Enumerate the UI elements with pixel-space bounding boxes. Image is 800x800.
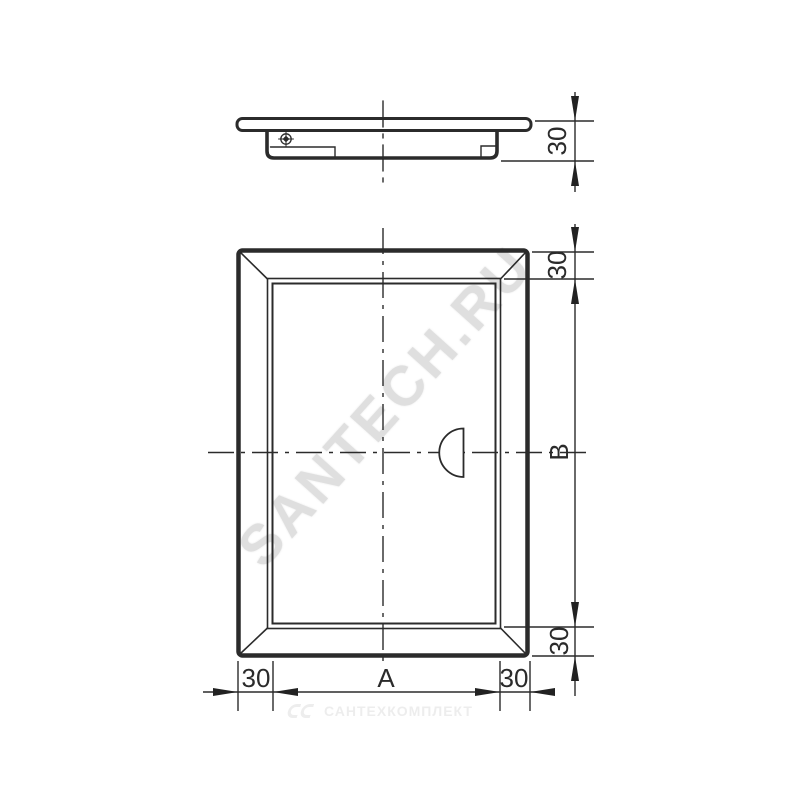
arrow-up-sideview <box>571 161 579 186</box>
dim-label-right-frame: 30 <box>500 663 529 693</box>
side-view-inner-step-left <box>271 147 336 157</box>
arrow-down-front-top <box>571 227 579 252</box>
dim-label-bottom-frame: 30 <box>544 627 574 656</box>
dimension-lines <box>203 92 594 711</box>
arrow-down-b-bottom <box>571 602 579 627</box>
arrow-right-bottom-left30 <box>213 688 238 696</box>
arrow-left-a-left <box>273 688 298 696</box>
fastener-target-icon <box>279 132 294 147</box>
dimension-labels: 30 30 B 30 30 A 30 <box>242 127 574 693</box>
dim-label-top-frame: 30 <box>542 251 572 280</box>
drawing-linework: 30 30 B 30 30 A 30 <box>0 0 800 800</box>
arrow-up-front-bottom <box>571 656 579 681</box>
bevel-diagonal-bottom-left <box>241 628 269 654</box>
front-view-inner-rect-outer <box>268 279 501 629</box>
bevel-diagonal-bottom-right <box>500 628 526 654</box>
dim-label-opening-width: A <box>377 663 395 693</box>
arrow-right-a-right <box>475 688 500 696</box>
dim-label-opening-height: B <box>544 443 574 460</box>
arrow-left-bottom-right30 <box>530 688 555 696</box>
front-view <box>208 228 592 663</box>
side-view-tray <box>267 130 497 159</box>
dim-label-left-frame: 30 <box>242 663 271 693</box>
dim-label-side-thickness: 30 <box>542 127 572 156</box>
bevel-diagonal-top-right <box>500 253 526 280</box>
handle-half-circle <box>439 429 463 478</box>
side-view-inner-step-right <box>481 146 496 157</box>
arrow-up-b-top <box>571 279 579 304</box>
side-profile-view <box>237 101 531 182</box>
arrow-down-sideview <box>571 96 579 121</box>
side-view-flange <box>237 119 531 131</box>
bevel-diagonal-top-left <box>241 253 269 280</box>
technical-drawing-canvas: SANTECH.RU САНТЕХКОМПЛЕКТ <box>0 0 800 800</box>
